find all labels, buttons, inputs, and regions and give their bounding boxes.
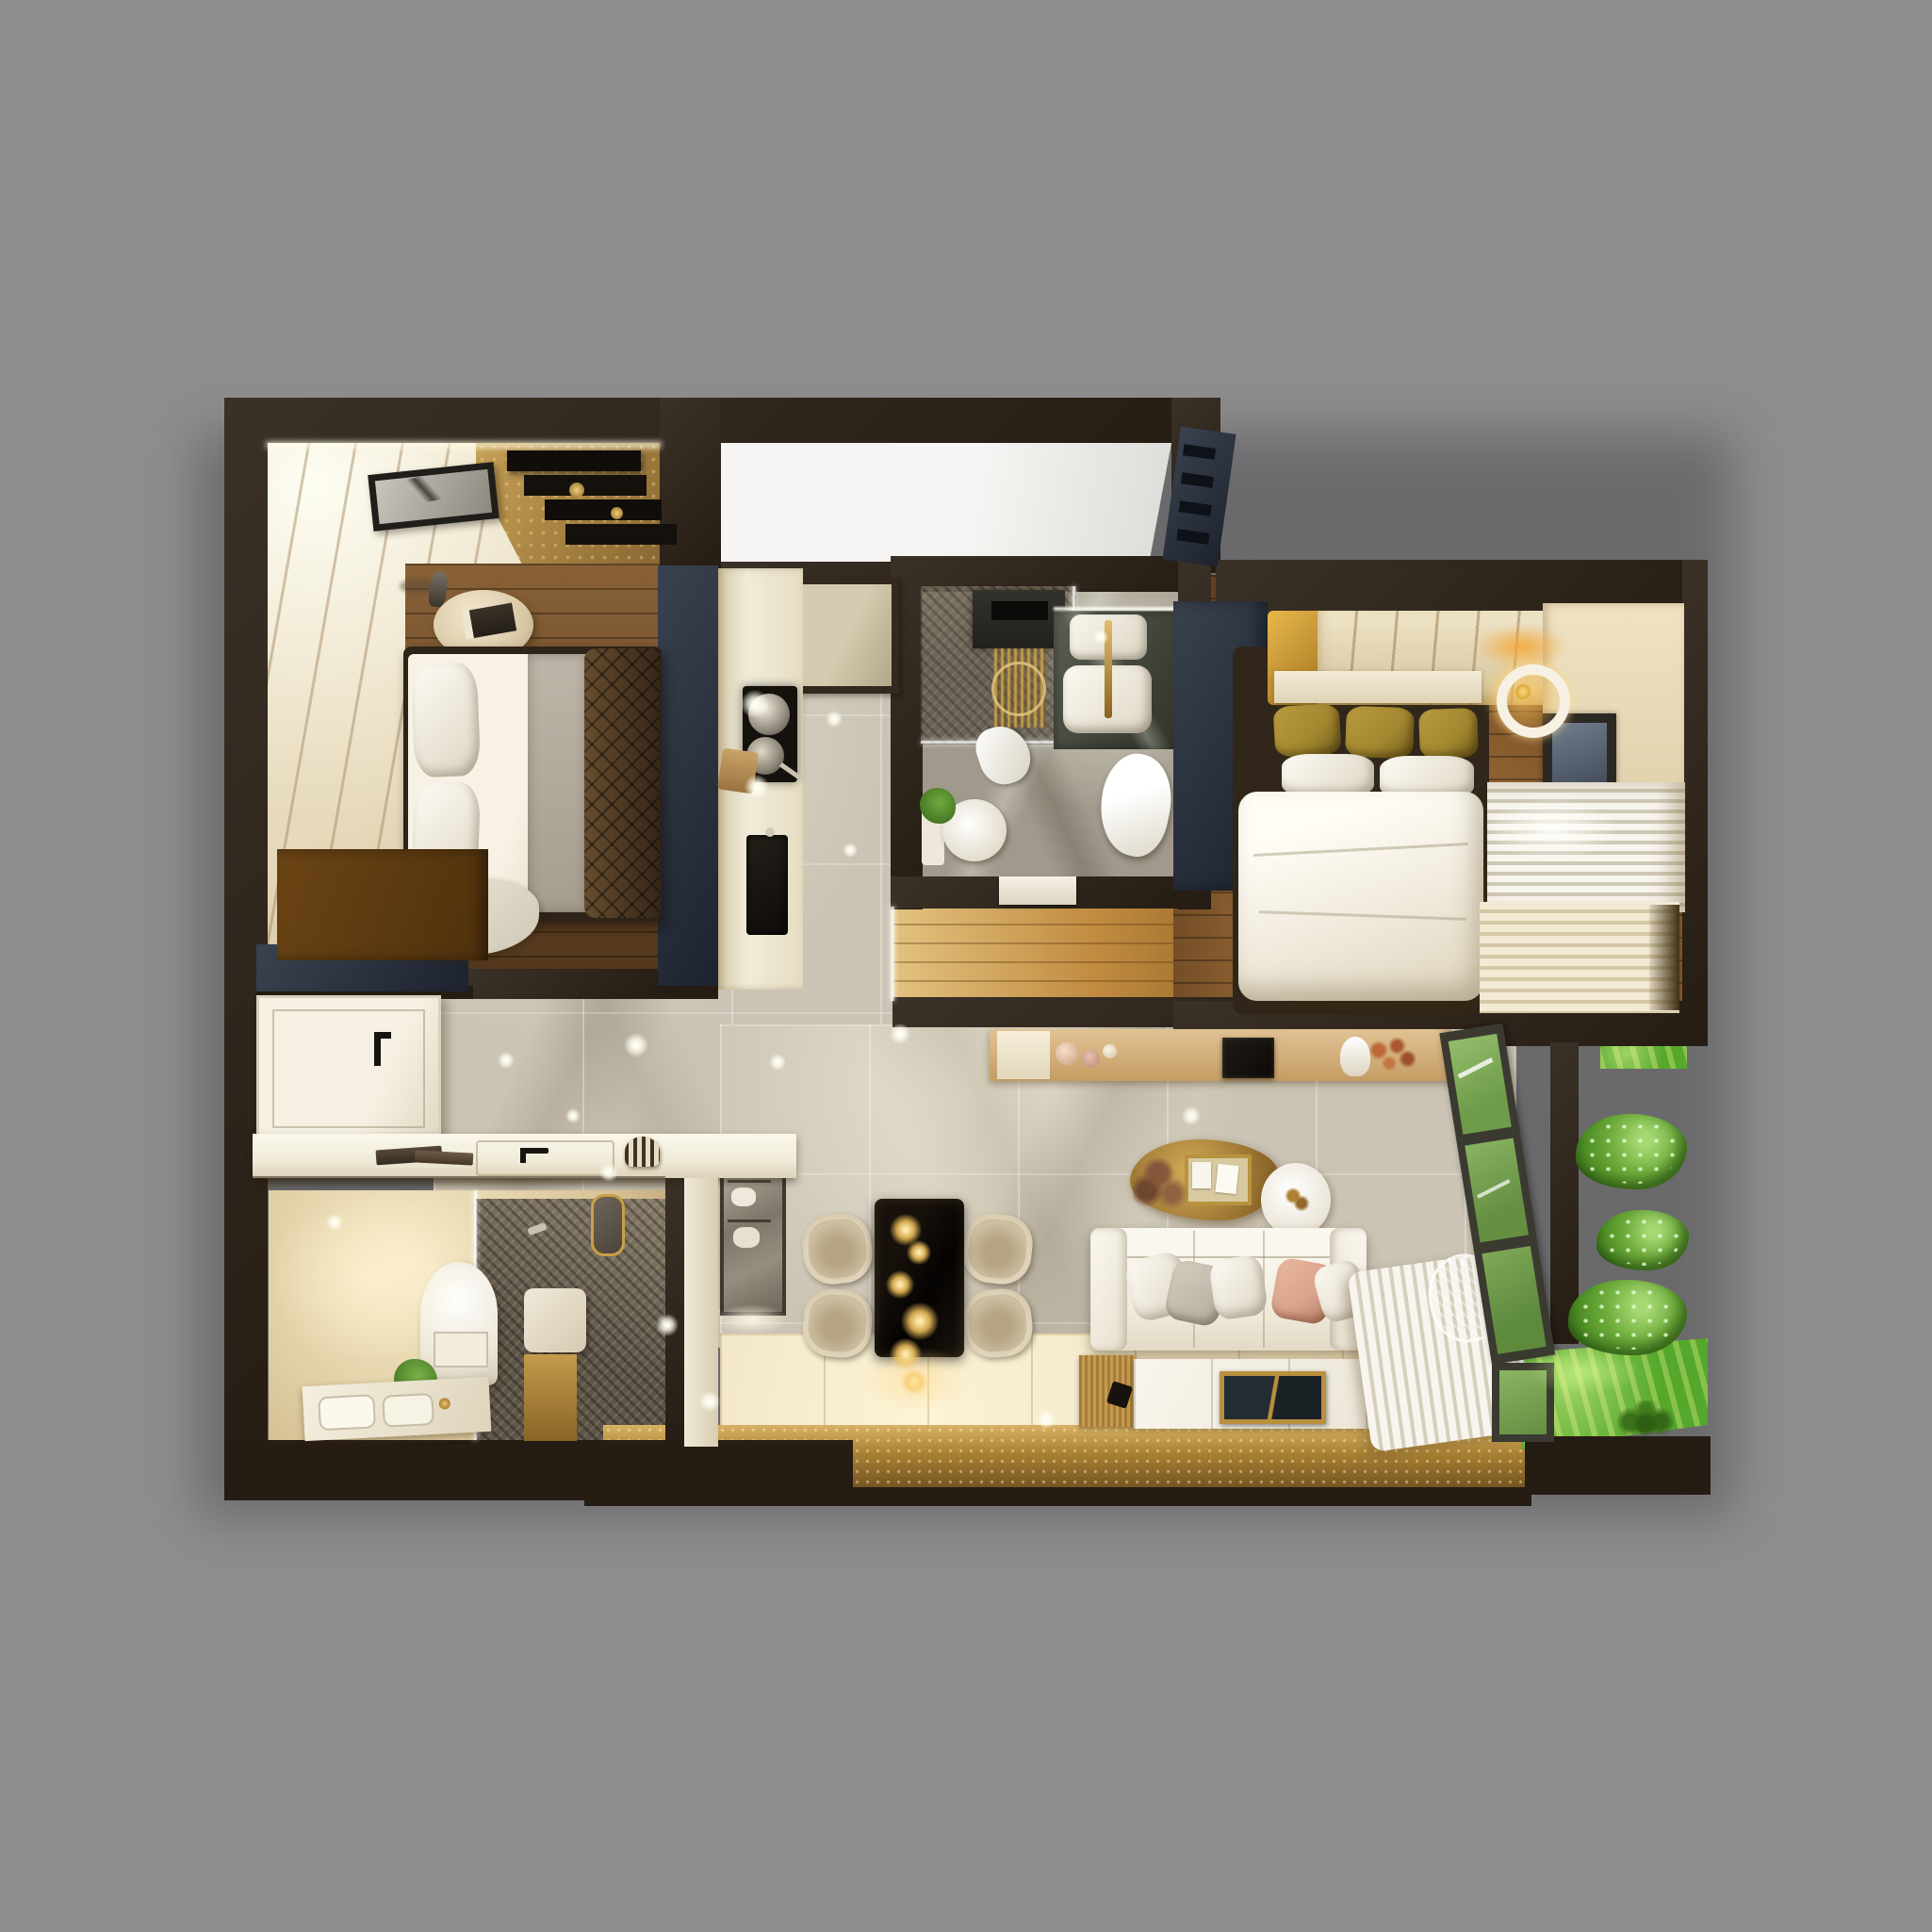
window-pane-green bbox=[1449, 1034, 1512, 1135]
wall-bath1-top bbox=[891, 556, 1211, 588]
pin-board bbox=[1185, 1154, 1252, 1205]
window-pane-green bbox=[1482, 1246, 1546, 1354]
louver-slat bbox=[1179, 500, 1212, 516]
sink-faucet bbox=[765, 827, 775, 837]
basin-counter bbox=[303, 1377, 492, 1441]
counter-waterfall bbox=[684, 1178, 718, 1447]
cabinet-towel bbox=[733, 1227, 760, 1248]
entrance-door bbox=[256, 995, 441, 1142]
console-decor-bowl bbox=[1103, 1044, 1117, 1058]
chandelier-glow bbox=[860, 1348, 973, 1414]
shrub bbox=[1576, 1114, 1687, 1189]
shrub bbox=[1568, 1280, 1687, 1355]
basin bbox=[318, 1394, 376, 1431]
bedroom2-wardrobe bbox=[277, 849, 488, 960]
headboard-shelf bbox=[1274, 671, 1482, 703]
olive-pillow bbox=[1273, 703, 1342, 758]
cabinet-towel bbox=[731, 1187, 756, 1206]
pinned-paper bbox=[1215, 1164, 1238, 1194]
shower-mirror bbox=[591, 1194, 625, 1256]
shower-glass-ring bbox=[991, 662, 1046, 716]
vase-flowers bbox=[1363, 1033, 1416, 1076]
corridor-door-leaf bbox=[999, 876, 1076, 905]
curtain-dark-edge bbox=[1649, 905, 1679, 1010]
corridor-threshold-glow bbox=[891, 907, 894, 1001]
shower-gold-floor bbox=[524, 1354, 577, 1441]
kitchen-tall-unit bbox=[658, 565, 718, 990]
vanity-light-strip bbox=[1054, 607, 1183, 611]
bath1-plant bbox=[920, 788, 956, 824]
sofa-arm bbox=[1090, 1228, 1127, 1351]
dining-table bbox=[875, 1199, 964, 1357]
cooktop-pan bbox=[748, 694, 790, 735]
pinned-paper bbox=[1192, 1162, 1211, 1188]
console-decor-bowl bbox=[1082, 1050, 1100, 1068]
wall-kitchen-foot bbox=[658, 986, 718, 999]
door-panel-line bbox=[272, 1009, 425, 1128]
shower-bench bbox=[524, 1288, 586, 1352]
pendant-lamp-ring bbox=[1497, 664, 1570, 738]
palm-plant bbox=[1615, 1400, 1676, 1448]
wall-living-bottom-line bbox=[584, 1487, 1531, 1506]
counter-shadow bbox=[253, 1176, 665, 1191]
cabinet-shelf bbox=[728, 1180, 771, 1183]
master-duvet bbox=[1238, 792, 1483, 1001]
wall-top bbox=[224, 398, 1220, 443]
console-cabinet bbox=[997, 1031, 1050, 1079]
lawn-highlight bbox=[1527, 1348, 1640, 1395]
bed-pillow bbox=[411, 663, 481, 778]
window-pane-green bbox=[1465, 1138, 1529, 1242]
louver-slat bbox=[1181, 472, 1214, 488]
wall-bedroom2-bottom bbox=[468, 969, 665, 999]
floor-plan-canvas bbox=[0, 0, 1932, 1932]
kitchen-sink bbox=[746, 835, 788, 935]
dried-flowers bbox=[1133, 1146, 1189, 1214]
rain-shower-slot bbox=[991, 601, 1048, 620]
gold-tap bbox=[438, 1398, 450, 1410]
cabinet-floor-glow bbox=[716, 1305, 786, 1334]
shelf-gold-decor bbox=[569, 483, 584, 498]
bedroom2-glow-line bbox=[266, 441, 662, 449]
wall-balcony-lip bbox=[1550, 1042, 1579, 1344]
entry-landing bbox=[721, 443, 1171, 564]
wall-bedroom2-entry bbox=[660, 398, 721, 573]
step-shelf-icon bbox=[545, 499, 662, 520]
vanity-gold-faucet bbox=[1105, 620, 1112, 718]
step-shelf-icon bbox=[524, 475, 647, 496]
bed-brown-quilt bbox=[584, 648, 660, 918]
olive-pillow bbox=[1418, 708, 1479, 759]
television bbox=[1222, 1038, 1274, 1078]
coffee-tray bbox=[1220, 1371, 1326, 1424]
step-shelf-icon bbox=[565, 524, 677, 545]
balcony-lawn-strip bbox=[1600, 1042, 1687, 1069]
curtain-light-streak bbox=[1491, 799, 1613, 860]
door-handle-bar bbox=[374, 1032, 391, 1039]
basin bbox=[382, 1393, 434, 1428]
sofa-pillow-white bbox=[1208, 1253, 1269, 1320]
wall-master-right bbox=[1682, 560, 1708, 1027]
clock-ornament bbox=[1282, 1184, 1310, 1214]
bath2-glow bbox=[275, 1197, 464, 1357]
louver-slat bbox=[1176, 529, 1209, 545]
console-decor-bowl bbox=[1056, 1042, 1078, 1065]
cabinet-shelf bbox=[728, 1220, 771, 1222]
wall-bath2-divider bbox=[665, 1178, 686, 1451]
shelf-gold-decor bbox=[611, 507, 623, 519]
bed-gray-runner bbox=[528, 654, 586, 912]
step-shelf-icon bbox=[507, 450, 641, 471]
pendant-lamp-bulb bbox=[1515, 684, 1531, 699]
louver-slat bbox=[1183, 444, 1216, 460]
olive-pillow bbox=[1345, 706, 1415, 759]
shell-decor bbox=[625, 1137, 660, 1167]
counter-sink-line bbox=[476, 1140, 614, 1176]
cutting-board bbox=[717, 748, 759, 794]
counter-faucet bbox=[520, 1148, 526, 1163]
shrub bbox=[1596, 1210, 1689, 1270]
